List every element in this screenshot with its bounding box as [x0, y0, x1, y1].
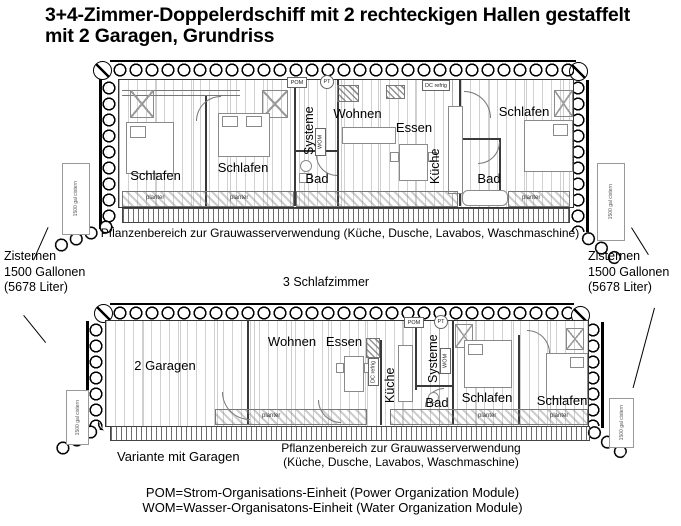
lower-greenhouse-front [110, 426, 590, 441]
lower-wall [380, 340, 382, 425]
room-label-systeme: Systeme [302, 93, 318, 155]
upper-wall [459, 138, 500, 140]
floorplan-canvas: 3+4-Zimmer-Doppelerdschiff mit 2 rechtec… [0, 0, 681, 526]
closet-icon [566, 328, 584, 350]
lower-tirewall-right-edge [601, 322, 604, 428]
closet-icon [130, 90, 154, 118]
room-label-bad: Bad [420, 395, 454, 410]
upper-cistern-right: 1500 gal cistern [597, 163, 625, 241]
cistern-annotation-line: 1500 Gallonen [588, 265, 669, 281]
stove-icon [386, 85, 405, 99]
stove-icon [337, 85, 359, 102]
room-label-kueche: Küche [383, 345, 399, 403]
kitchen-counter-icon [398, 345, 413, 402]
lower-greywater-note-line1: Pflanzenbereich zur Grauwasserverwendung [266, 441, 536, 455]
cistern-annotation-line: 1500 Gallonen [4, 265, 85, 281]
sofa-icon [342, 127, 396, 144]
cistern-capacity-label: 1500 gal cistern [73, 181, 79, 216]
page-title-line2: mit 2 Garagen, Grundriss [45, 26, 630, 47]
bedrooms-count-note: 3 Schlafzimmer [246, 275, 406, 289]
room-label-bad: Bad [300, 171, 334, 186]
cistern-capacity-label: 1500 gal cistern [619, 405, 625, 440]
upper-cistern-left: 1500 gal cistern [62, 163, 90, 235]
room-label-kueche: Küche [428, 124, 444, 184]
cistern-annotation-line: (5678 Liter) [588, 280, 669, 296]
pom-module-box: POM [404, 317, 424, 328]
dc-refrig-box: DC refrig [368, 358, 379, 386]
lower-wall [415, 385, 453, 387]
room-label-garagen: 2 Garagen [125, 358, 205, 373]
leader-line [23, 315, 46, 343]
chair-icon [336, 363, 344, 373]
upper-tirewall-left [101, 80, 117, 228]
room-label-systeme: Systeme [426, 323, 442, 383]
pom-module-box: POM [287, 77, 307, 88]
lower-tirewall-left [88, 322, 104, 430]
room-label-schlafen: Schlafen [486, 104, 562, 119]
upper-greenhouse-front [122, 208, 570, 223]
kitchen-counter-icon [448, 106, 463, 194]
legend-pom: POM=Strom-Organisations-Einheit (Power O… [60, 485, 605, 500]
lower-cistern-right: 1500 gal cistern [609, 398, 634, 448]
planter-label: planter [230, 195, 248, 201]
upper-tirewall-top [112, 62, 574, 78]
upper-tirewall-right-edge [586, 80, 589, 232]
upper-planter-box [296, 191, 458, 207]
planter-label: planter [146, 195, 164, 201]
room-label-essen: Essen [322, 334, 366, 349]
lower-wall [415, 320, 417, 390]
planter-label: planter [262, 413, 280, 419]
planter-label: planter [478, 413, 496, 419]
upper-greywater-note: Pflanzenbereich zur Grauwasserverwendung… [90, 226, 590, 240]
room-label-schlafen: Schlafen [118, 168, 193, 183]
room-label-wohnen: Wohnen [264, 334, 320, 349]
pillow-icon [246, 116, 262, 127]
dc-refrig-box: DC refrig [422, 80, 450, 91]
room-label-schlafen: Schlafen [450, 390, 524, 405]
upper-wall [294, 80, 296, 206]
lower-cistern-left: 1500 gal cistern [66, 390, 89, 445]
pillow-icon [222, 116, 238, 127]
pillow-icon [130, 126, 146, 138]
lower-planter-box [215, 409, 367, 425]
chair-icon [390, 152, 399, 162]
cistern-annotation-left: Zisternen 1500 Gallonen (5678 Liter) [4, 249, 85, 296]
pillow-icon [468, 344, 483, 355]
cistern-annotation-line: Zisternen [4, 249, 85, 265]
room-label-schlafen: Schlafen [205, 160, 281, 175]
room-label-wohnen: Wohnen [330, 106, 385, 121]
pillow-icon [570, 357, 584, 368]
page-title: 3+4-Zimmer-Doppelerdschiff mit 2 rechtec… [45, 5, 630, 47]
page-title-line1: 3+4-Zimmer-Doppelerdschiff mit 2 rechtec… [45, 5, 630, 26]
stove-icon [366, 338, 380, 358]
room-label-bad: Bad [472, 171, 506, 186]
pillow-icon [553, 124, 568, 136]
bathtub-icon [462, 190, 508, 206]
dining-table-icon [344, 356, 364, 392]
pt-module-circle: PT [320, 75, 334, 89]
cistern-annotation-right: Zisternen 1500 Gallonen (5678 Liter) [588, 249, 669, 296]
upper-corner-tire-left-icon [93, 61, 112, 80]
lower-greywater-note-line2: (Küche, Dusche, Lavabos, Waschmaschine) [266, 455, 536, 469]
cistern-capacity-label: 1500 gal cistern [608, 184, 614, 219]
leader-line [633, 308, 655, 388]
variant-caption: Variante mit Garagen [117, 449, 240, 464]
legend-wom: WOM=Wasser-Organisatons-Einheit (Water O… [60, 500, 605, 515]
planter-label: planter [550, 413, 568, 419]
cistern-annotation-line: (5678 Liter) [4, 280, 85, 296]
dining-table-icon [399, 144, 428, 181]
lower-tirewall-top [112, 305, 572, 321]
cistern-annotation-line: Zisternen [588, 249, 669, 265]
room-label-schlafen: Schlafen [525, 393, 599, 408]
planter-label: planter [522, 195, 540, 201]
cistern-capacity-label: 1500 gal cistern [75, 400, 81, 435]
